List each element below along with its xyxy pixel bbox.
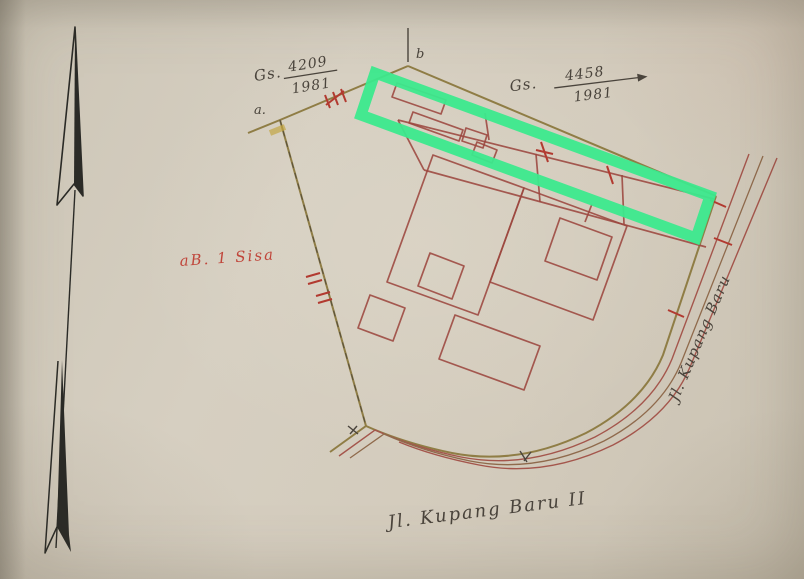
- cert-left-prefix: Gs.: [253, 63, 283, 85]
- cert-right-prefix: Gs.: [509, 74, 538, 95]
- label-remainder: aB. 1 Sisa: [179, 245, 276, 270]
- label-road-bottom: Jl. Kupang Baru II: [383, 488, 588, 534]
- label-road-right: Jl. Kupang Baru: [664, 272, 735, 406]
- cert-right-denominator: 1981: [573, 85, 614, 106]
- cert-left-denominator: 1981: [291, 75, 333, 97]
- label-cert-right: Gs. 4458 1981: [508, 59, 650, 114]
- point-label-a: a.: [254, 103, 266, 118]
- map-drawing: Gs. 4209 1981 Gs. 4458 1981 aB. 1 Sisa J…: [0, 0, 804, 579]
- point-label-b: b: [416, 47, 424, 62]
- cert-right-numerator: 4458: [563, 64, 605, 85]
- north-arrow-icon: [45, 27, 83, 553]
- arrow-right-icon: [637, 73, 648, 82]
- label-cert-left: Gs. 4209 1981: [252, 52, 340, 103]
- scanned-survey-map: Gs. 4209 1981 Gs. 4458 1981 aB. 1 Sisa J…: [0, 0, 804, 579]
